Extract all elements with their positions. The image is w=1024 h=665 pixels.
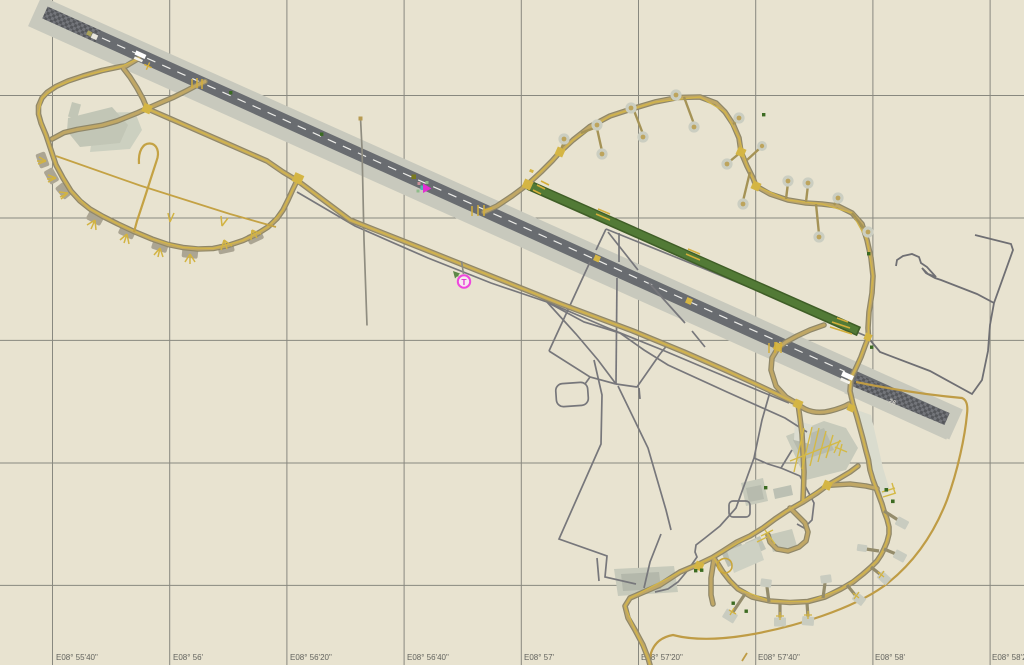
svg-text:E08° 57': E08° 57' bbox=[524, 653, 555, 662]
svg-text:E08° 58'2: E08° 58'2 bbox=[992, 653, 1024, 662]
svg-text:T: T bbox=[461, 277, 467, 287]
svg-text:E08° 57'40": E08° 57'40" bbox=[758, 653, 800, 662]
svg-text:E08° 56'40": E08° 56'40" bbox=[407, 653, 449, 662]
svg-text:E08° 55'40": E08° 55'40" bbox=[56, 653, 98, 662]
svg-text:E08° 58': E08° 58' bbox=[875, 653, 906, 662]
svg-text:E08° 56': E08° 56' bbox=[173, 653, 204, 662]
svg-text:E08° 56'20": E08° 56'20" bbox=[290, 653, 332, 662]
